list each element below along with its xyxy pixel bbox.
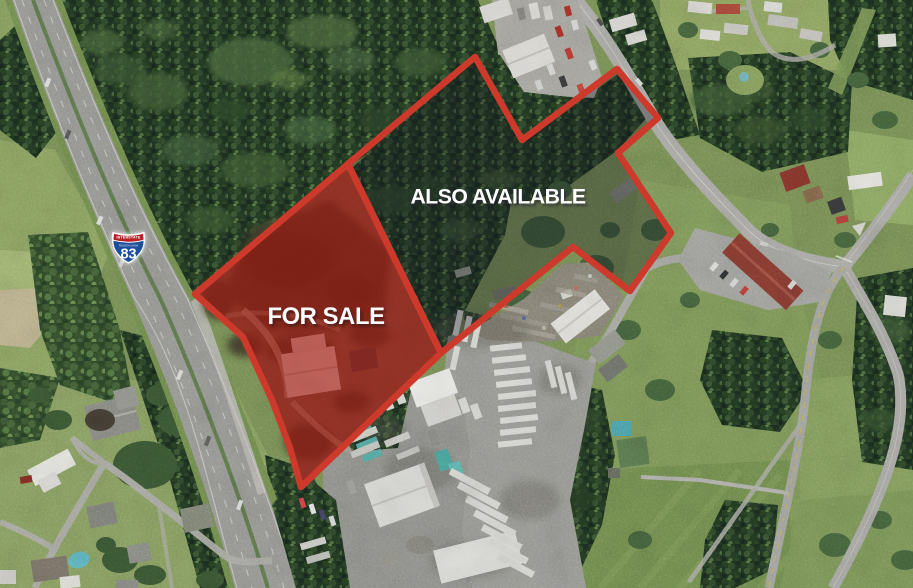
svg-text:INTERSTATE: INTERSTATE xyxy=(116,235,140,239)
svg-text:83: 83 xyxy=(120,247,136,263)
svg-text:FOR SALE: FOR SALE xyxy=(267,303,384,330)
svg-text:ALSO AVAILABLE: ALSO AVAILABLE xyxy=(410,186,585,209)
